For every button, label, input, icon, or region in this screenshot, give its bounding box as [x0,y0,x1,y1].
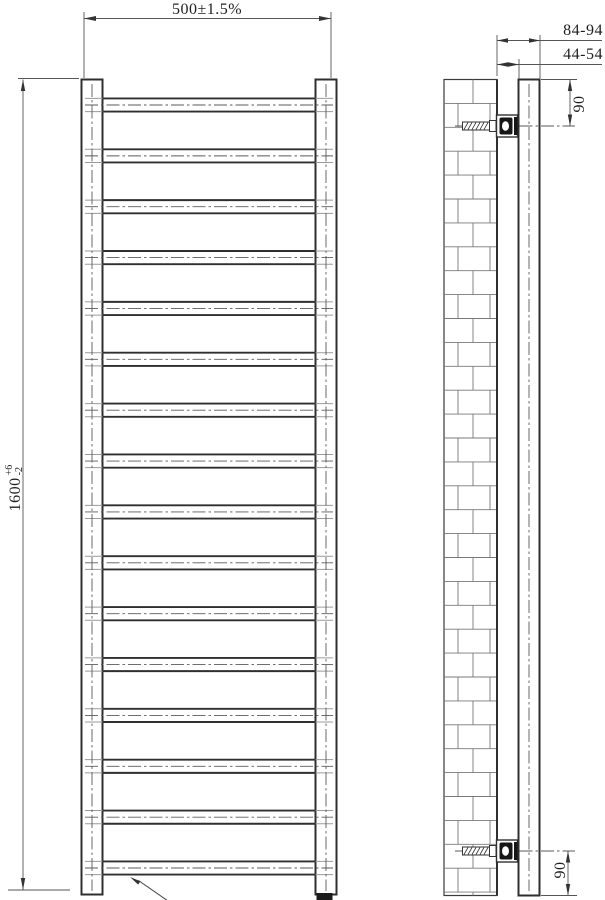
bracket-clamp-bar [514,117,518,135]
rungs [85,98,333,874]
height-dimension-label: 1600+6-2 [6,451,26,525]
valve-stub [317,893,333,900]
wall-section [444,80,497,896]
side-view [444,80,575,896]
height-tolerance: +6-2 [5,465,25,476]
front-view [82,80,337,900]
width-dimension-label: 500±1.5% [147,1,267,18]
leader-line [139,881,169,900]
bracket-offset-top-label: 90 [572,89,588,119]
bracket-clamp-bar [514,842,518,860]
leader-arrowhead [130,877,140,885]
wall-to-front-dimension-label: 84-94 [518,22,603,40]
wall-to-back-dimension-label: 44-54 [518,46,603,64]
bracket-offset-bottom-label: 90 [553,855,569,885]
drawing-linework [0,0,605,900]
bracket-hole [502,121,509,131]
screw-flange [490,846,497,857]
bracket-hole [502,846,509,856]
height-value: 1600 [7,477,25,511]
technical-drawing: 500±1.5% 1600+6-2 84-94 44-54 90 90 [0,0,605,900]
screw-flange [490,121,497,132]
